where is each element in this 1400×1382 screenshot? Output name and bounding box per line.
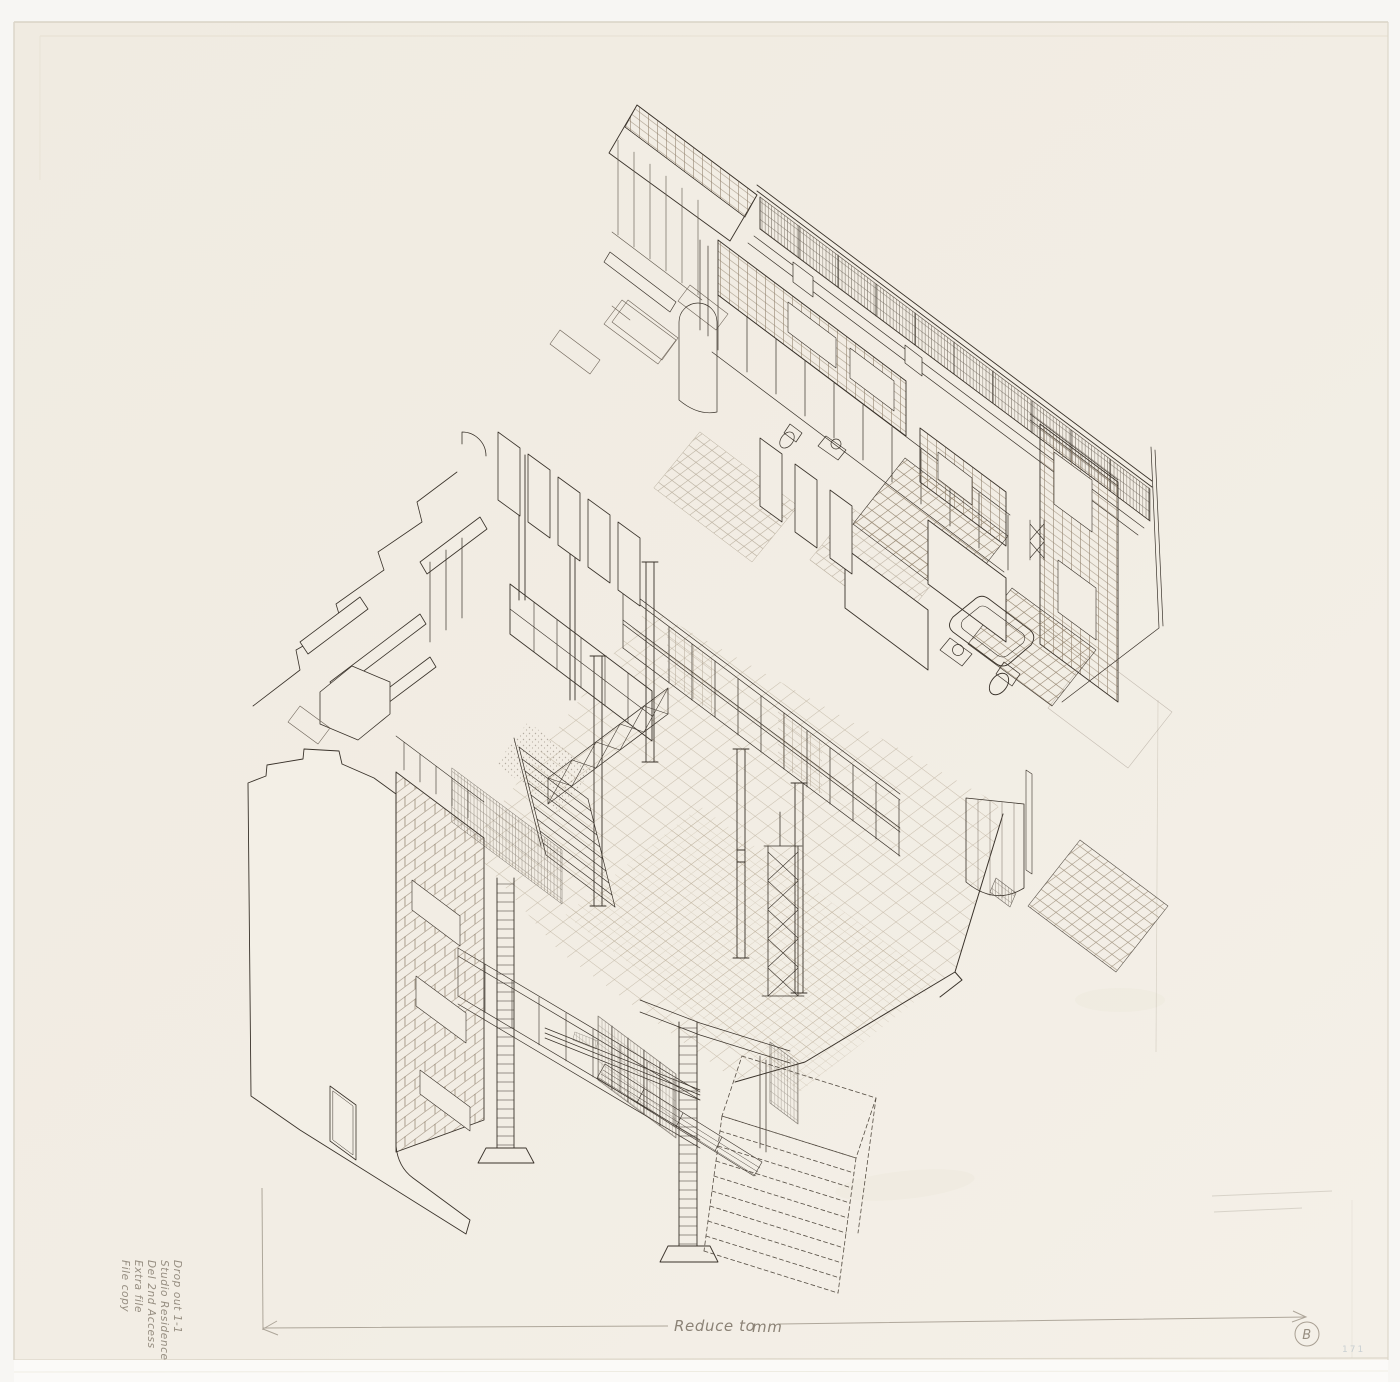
- architectural-axonometric-drawing: Reduce to mm Drop out 1-1 Studio Residen…: [0, 0, 1400, 1382]
- note-line-5: File copy: [119, 1260, 131, 1312]
- note-line-2: Studio Residence: [158, 1260, 170, 1361]
- reduce-to-label: Reduce to: [674, 1317, 755, 1335]
- unit-label: mm: [752, 1318, 782, 1336]
- note-line-4: Extra file: [132, 1260, 144, 1313]
- scanned-drawing-sheet: Reduce to mm Drop out 1-1 Studio Residen…: [0, 0, 1400, 1382]
- note-line-3: Del 2nd Access: [145, 1260, 157, 1349]
- sheet-mark-letter: B: [1302, 1328, 1312, 1343]
- note-line-1: Drop out 1-1: [171, 1260, 183, 1334]
- inventory-stamp: 171: [1342, 1345, 1365, 1355]
